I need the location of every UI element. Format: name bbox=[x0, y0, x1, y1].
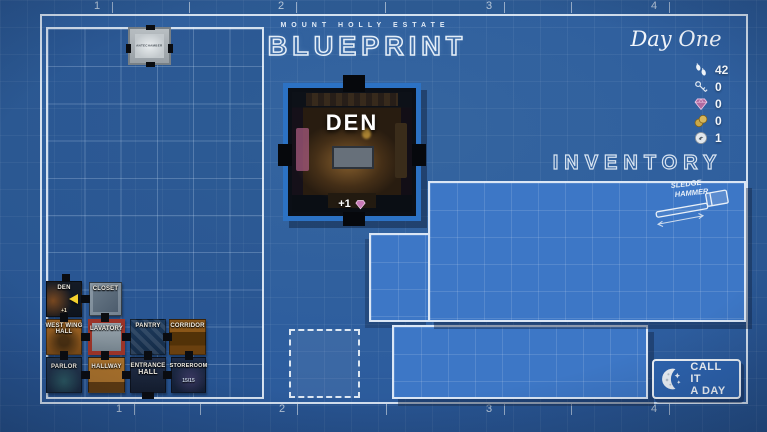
antechamber-tile[interactable]: ANTECHAMBER bbox=[128, 27, 171, 65]
key-icon bbox=[694, 80, 708, 94]
door-connector bbox=[122, 333, 131, 341]
drafted-room-card[interactable]: DEN +1 bbox=[283, 83, 421, 221]
door-notch bbox=[146, 62, 155, 67]
door-connector bbox=[60, 313, 68, 322]
gem-icon bbox=[694, 97, 708, 111]
room-tile-label: HALL bbox=[56, 329, 73, 335]
token-icon bbox=[694, 131, 708, 145]
room-tile-hallway[interactable]: HALLWAY bbox=[88, 357, 125, 393]
ruler-tick bbox=[571, 404, 572, 415]
room-tile-label: PARLOR bbox=[51, 364, 77, 370]
door-connector bbox=[122, 371, 131, 379]
door-connector bbox=[81, 333, 90, 341]
door-connector bbox=[81, 371, 90, 379]
coins-icon bbox=[694, 114, 708, 128]
ruler-tick bbox=[504, 404, 505, 415]
door-tab-bottom bbox=[343, 212, 365, 226]
resource-gems: 0 bbox=[694, 96, 754, 112]
ruler-tick bbox=[504, 2, 505, 13]
room-tile-label: CORRIDOR bbox=[170, 323, 204, 329]
ruler-top-4: 4 bbox=[646, 0, 662, 12]
ruler-tick bbox=[571, 2, 572, 13]
ruler-top-3: 3 bbox=[481, 0, 497, 12]
ruler-bottom-1: 1 bbox=[111, 403, 127, 415]
ruler-tick bbox=[386, 404, 387, 415]
star-icon bbox=[675, 373, 680, 378]
draft-placement-cell[interactable] bbox=[289, 329, 360, 398]
ruler-tick bbox=[200, 404, 201, 415]
room-tile-entrance-hall[interactable]: ENTRANCE HALL bbox=[130, 357, 166, 393]
door-connector bbox=[144, 351, 152, 360]
resource-tokens: 1 bbox=[694, 130, 754, 146]
keys-count: 0 bbox=[715, 80, 722, 94]
room-tile-sub: 15/15 bbox=[172, 378, 205, 384]
ruler-top-2: 2 bbox=[273, 0, 289, 12]
room-tile-closet[interactable]: CLOSET bbox=[89, 282, 122, 316]
room-card-name: DEN bbox=[288, 110, 416, 136]
door-notch bbox=[168, 44, 173, 53]
door-connector bbox=[185, 351, 193, 360]
door-tab-left bbox=[278, 144, 293, 166]
call-it-a-day-button[interactable]: CALL IT A DAY bbox=[652, 359, 741, 399]
coins-count: 0 bbox=[715, 114, 722, 128]
bookshelf-art bbox=[306, 93, 397, 106]
ruler-tick bbox=[134, 404, 135, 415]
page-title: BLUEPRINT bbox=[255, 31, 480, 62]
ruler-tick bbox=[297, 404, 298, 415]
table-art bbox=[332, 146, 374, 169]
resource-keys: 0 bbox=[694, 79, 754, 95]
moon-icon bbox=[660, 365, 684, 393]
room-card-reward: +1 bbox=[288, 198, 416, 210]
antechamber-floor: ANTECHAMBER bbox=[135, 34, 164, 58]
ruler-bottom-3: 3 bbox=[481, 403, 497, 415]
room-tile-label: DEN bbox=[57, 285, 70, 291]
room-tile-label: CLOSET bbox=[93, 286, 119, 292]
inventory-title: INVENTORY bbox=[535, 152, 740, 175]
door-tab-right bbox=[411, 144, 426, 166]
room-tile-label: LAVATORY bbox=[90, 326, 123, 332]
entrance-steps bbox=[142, 392, 154, 399]
door-connector bbox=[60, 351, 68, 360]
lower-tray-panel bbox=[392, 325, 648, 399]
room-tile-parlor[interactable]: PARLOR bbox=[46, 357, 82, 393]
resource-coins: 0 bbox=[694, 113, 754, 129]
door-notch bbox=[126, 44, 131, 53]
ruler-bottom-4: 4 bbox=[646, 403, 662, 415]
estate-name: MOUNT HOLLY ESTATE bbox=[250, 22, 480, 29]
blueprint-screen: 1 2 3 4 1 2 3 4 ANTECHAMBER MOUNT HOLLY … bbox=[0, 0, 767, 432]
star-icon bbox=[677, 380, 681, 384]
ruler-tick bbox=[189, 2, 190, 13]
door-connector bbox=[101, 313, 109, 322]
ruler-tick bbox=[112, 2, 113, 13]
steps-count: 42 bbox=[715, 63, 728, 77]
door-tab-top bbox=[343, 75, 365, 93]
call-label-line2: A DAY bbox=[690, 385, 733, 397]
room-tile-west-wing-hall[interactable]: WEST WING HALL bbox=[46, 319, 82, 355]
ruler-tick bbox=[385, 2, 386, 13]
room-tile-pantry[interactable]: PANTRY bbox=[130, 319, 166, 355]
ruler-tick bbox=[669, 404, 670, 415]
room-tile-label: HALLWAY bbox=[91, 364, 121, 370]
door-notch bbox=[146, 25, 155, 30]
room-tile-store-room[interactable]: STOREROOM 15/15 bbox=[171, 357, 206, 393]
door-connector bbox=[101, 351, 109, 360]
tokens-count: 1 bbox=[715, 131, 722, 145]
room-tile-label: PANTRY bbox=[135, 323, 160, 329]
player-position-arrow bbox=[69, 294, 78, 304]
room-tile-den[interactable]: DEN +1 bbox=[46, 281, 82, 317]
door-connector bbox=[163, 333, 172, 341]
door-connector bbox=[163, 371, 172, 379]
day-counter: Day One bbox=[626, 27, 726, 51]
ruler-bottom-2: 2 bbox=[274, 403, 290, 415]
inventory-panel-extension bbox=[369, 233, 430, 322]
call-label-line1: CALL IT bbox=[690, 361, 733, 385]
ruler-tick bbox=[296, 2, 297, 13]
room-tile-label: STOREROOM bbox=[170, 364, 208, 370]
door-connector bbox=[81, 295, 90, 303]
room-tile-corridor[interactable]: CORRIDOR bbox=[169, 319, 206, 355]
antechamber-label: ANTECHAMBER bbox=[136, 45, 162, 48]
call-button-label: CALL IT A DAY bbox=[690, 361, 733, 397]
gems-count: 0 bbox=[715, 97, 722, 111]
room-tile-label: HALL bbox=[138, 369, 157, 376]
resource-steps: 42 bbox=[694, 62, 754, 78]
gem-icon bbox=[355, 199, 366, 210]
room-tile-lavatory[interactable]: LAVATORY bbox=[88, 319, 125, 355]
door-connector bbox=[62, 274, 70, 282]
ruler-tick bbox=[669, 2, 670, 13]
reward-amount: +1 bbox=[338, 198, 351, 210]
ruler-top-1: 1 bbox=[89, 0, 105, 12]
inventory-item-sledge-hammer[interactable]: SLEDGE HAMMER bbox=[644, 177, 744, 235]
footsteps-icon bbox=[694, 63, 708, 77]
